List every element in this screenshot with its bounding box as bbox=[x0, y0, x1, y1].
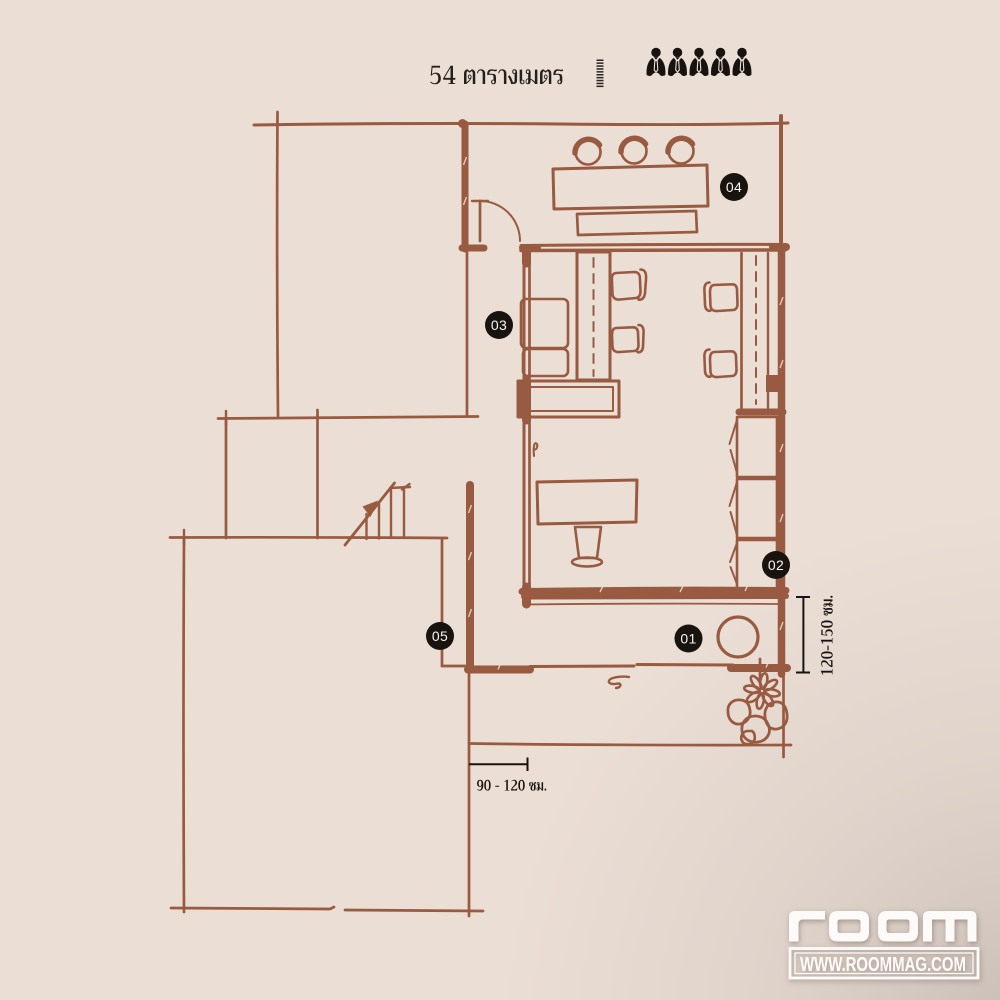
svg-text:02: 02 bbox=[768, 557, 784, 573]
svg-text:04: 04 bbox=[726, 179, 742, 195]
svg-text:WWW.ROOMMAG.COM: WWW.ROOMMAG.COM bbox=[800, 954, 966, 976]
svg-text:01: 01 bbox=[680, 631, 696, 647]
svg-text:03: 03 bbox=[491, 317, 507, 333]
svg-text:05: 05 bbox=[432, 628, 448, 644]
